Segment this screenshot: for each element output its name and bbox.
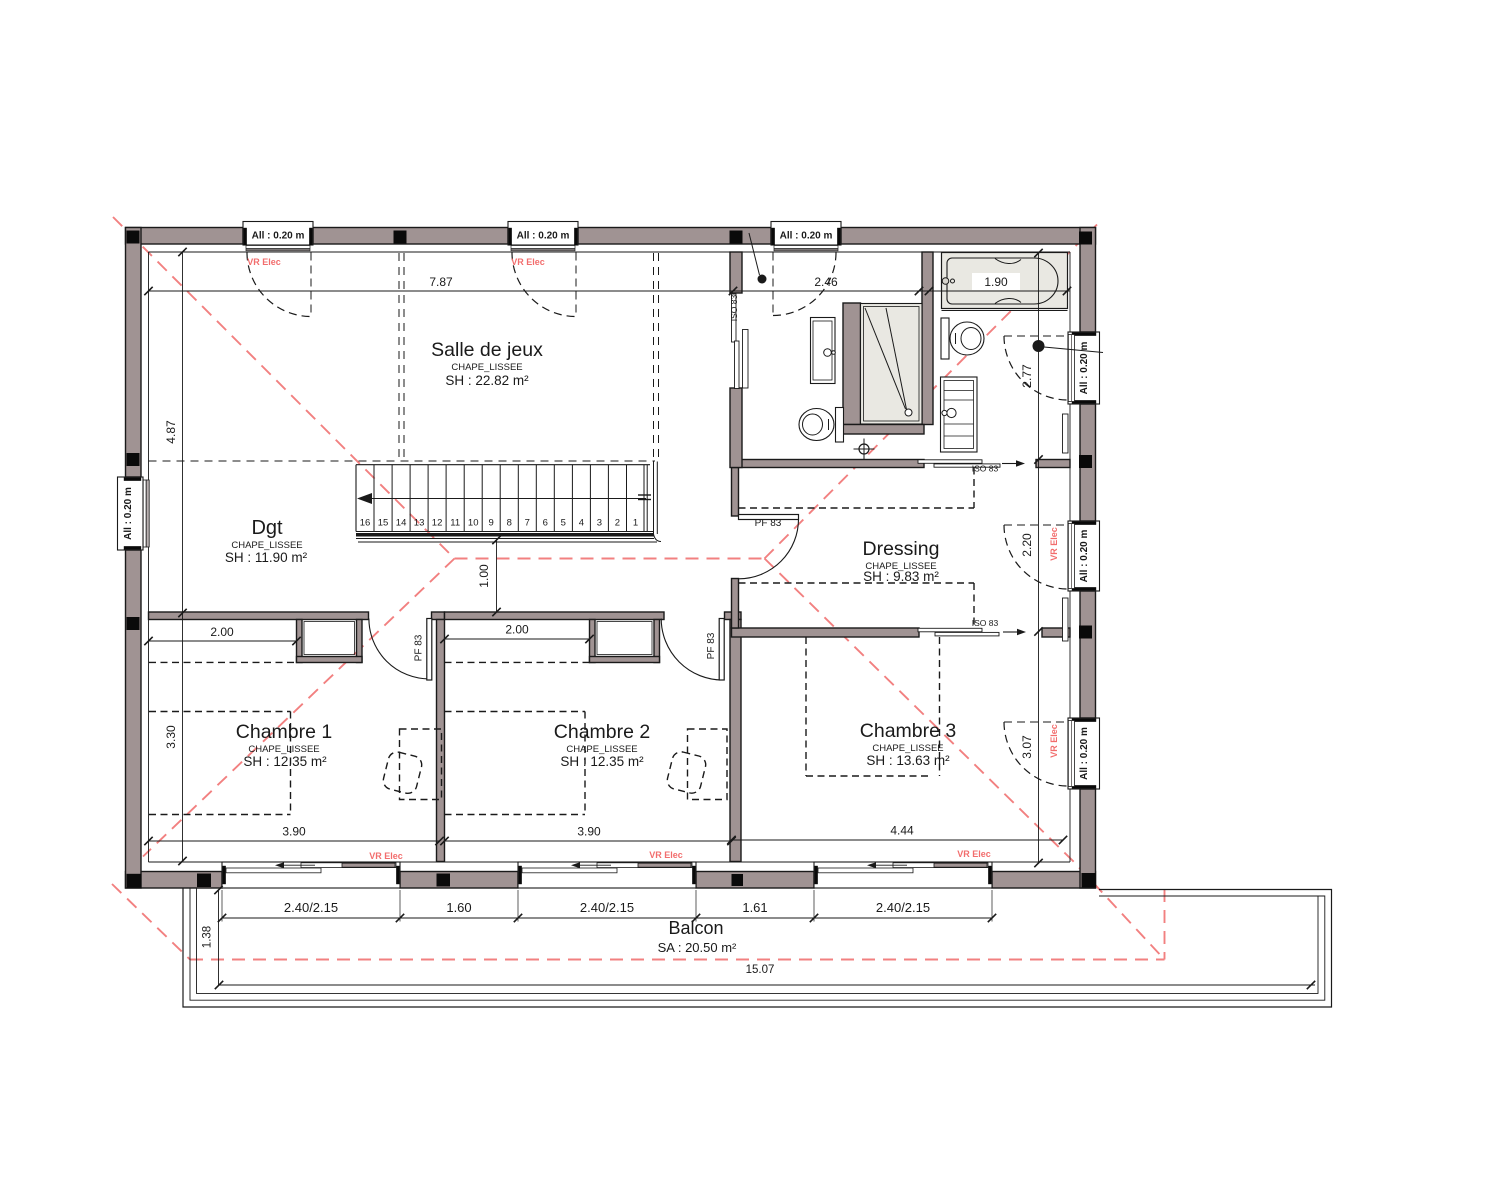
svg-text:3.90: 3.90	[282, 825, 306, 839]
svg-text:16: 16	[360, 518, 371, 529]
svg-text:4: 4	[579, 518, 584, 529]
svg-text:1.61: 1.61	[742, 900, 767, 915]
svg-text:14: 14	[396, 518, 407, 529]
svg-text:4.87: 4.87	[164, 420, 178, 444]
svg-text:All : 0.20 m: All : 0.20 m	[1079, 342, 1090, 395]
svg-text:1.90: 1.90	[984, 275, 1008, 289]
svg-text:ISO 83: ISO 83	[972, 618, 999, 628]
svg-text:2.00: 2.00	[505, 623, 529, 637]
svg-text:VR Elec: VR Elec	[247, 257, 281, 267]
svg-text:VR Elec: VR Elec	[511, 257, 545, 267]
svg-text:1.00: 1.00	[477, 564, 491, 588]
svg-text:SH : 11.90 m²: SH : 11.90 m²	[225, 550, 308, 565]
svg-text:15.07: 15.07	[746, 964, 775, 976]
svg-text:SH : 13.63 m²: SH : 13.63 m²	[866, 753, 950, 768]
svg-text:5: 5	[561, 518, 566, 529]
svg-text:VR Elec: VR Elec	[957, 849, 991, 859]
svg-text:Balcon: Balcon	[668, 918, 723, 938]
svg-text:ISO 83: ISO 83	[972, 464, 999, 474]
svg-text:2.40/2.15: 2.40/2.15	[580, 900, 634, 915]
svg-text:Salle de jeux: Salle de jeux	[431, 339, 543, 361]
svg-text:3.07: 3.07	[1020, 735, 1034, 759]
svg-text:CHAPE_LISSEE: CHAPE_LISSEE	[451, 362, 522, 373]
svg-text:PF 83: PF 83	[755, 518, 782, 529]
svg-text:All : 0.20 m: All : 0.20 m	[1079, 727, 1090, 780]
svg-text:SH : 12.35 m²: SH : 12.35 m²	[243, 754, 327, 769]
svg-text:All : 0.20 m: All : 0.20 m	[123, 487, 134, 540]
svg-text:7: 7	[525, 518, 530, 529]
svg-text:All : 0.20 m: All : 0.20 m	[252, 231, 305, 242]
svg-text:Chambre 1: Chambre 1	[236, 721, 332, 743]
svg-text:6: 6	[543, 518, 548, 529]
svg-text:Dressing: Dressing	[863, 538, 940, 560]
svg-text:1.38: 1.38	[202, 926, 214, 948]
svg-text:10: 10	[468, 518, 479, 529]
svg-text:13: 13	[414, 518, 425, 529]
svg-text:SA : 20.50 m²: SA : 20.50 m²	[658, 940, 737, 955]
svg-text:1.60: 1.60	[446, 900, 471, 915]
svg-text:3.90: 3.90	[577, 825, 601, 839]
svg-text:VR Elec: VR Elec	[1049, 724, 1059, 758]
svg-text:15: 15	[378, 518, 389, 529]
svg-text:PF 83: PF 83	[706, 632, 717, 659]
svg-text:ISO 83: ISO 83	[729, 295, 739, 322]
svg-text:12: 12	[432, 518, 443, 529]
svg-text:1: 1	[633, 518, 638, 529]
svg-text:All : 0.20 m: All : 0.20 m	[517, 231, 570, 242]
svg-text:2.77: 2.77	[1020, 364, 1034, 388]
svg-text:2: 2	[615, 518, 620, 529]
svg-text:7.87: 7.87	[429, 275, 453, 289]
svg-text:Dgt: Dgt	[251, 517, 283, 539]
svg-text:All : 0.20 m: All : 0.20 m	[1079, 530, 1090, 583]
svg-text:4.44: 4.44	[890, 824, 914, 838]
svg-text:PF 83: PF 83	[414, 634, 425, 661]
svg-text:SH : 12.35 m²: SH : 12.35 m²	[560, 754, 644, 769]
svg-text:2.40/2.15: 2.40/2.15	[876, 900, 930, 915]
svg-text:2.20: 2.20	[1020, 533, 1034, 557]
svg-text:SH : 9.83 m²: SH : 9.83 m²	[863, 569, 939, 584]
svg-text:2.00: 2.00	[210, 625, 234, 639]
svg-text:11: 11	[450, 518, 460, 529]
svg-text:All : 0.20 m: All : 0.20 m	[780, 231, 833, 242]
svg-text:3: 3	[597, 518, 602, 529]
svg-text:8: 8	[507, 518, 512, 529]
svg-text:3.30: 3.30	[164, 725, 178, 749]
svg-text:VR Elec: VR Elec	[1049, 527, 1059, 561]
svg-text:2.40/2.15: 2.40/2.15	[284, 900, 338, 915]
svg-text:Chambre 2: Chambre 2	[554, 721, 650, 743]
svg-text:VR Elec: VR Elec	[649, 850, 683, 860]
svg-text:SH : 22.82 m²: SH : 22.82 m²	[445, 373, 529, 388]
svg-text:Chambre 3: Chambre 3	[860, 720, 956, 742]
svg-text:9: 9	[489, 518, 494, 529]
svg-text:2.46: 2.46	[814, 275, 838, 289]
svg-text:VR Elec: VR Elec	[369, 851, 403, 861]
